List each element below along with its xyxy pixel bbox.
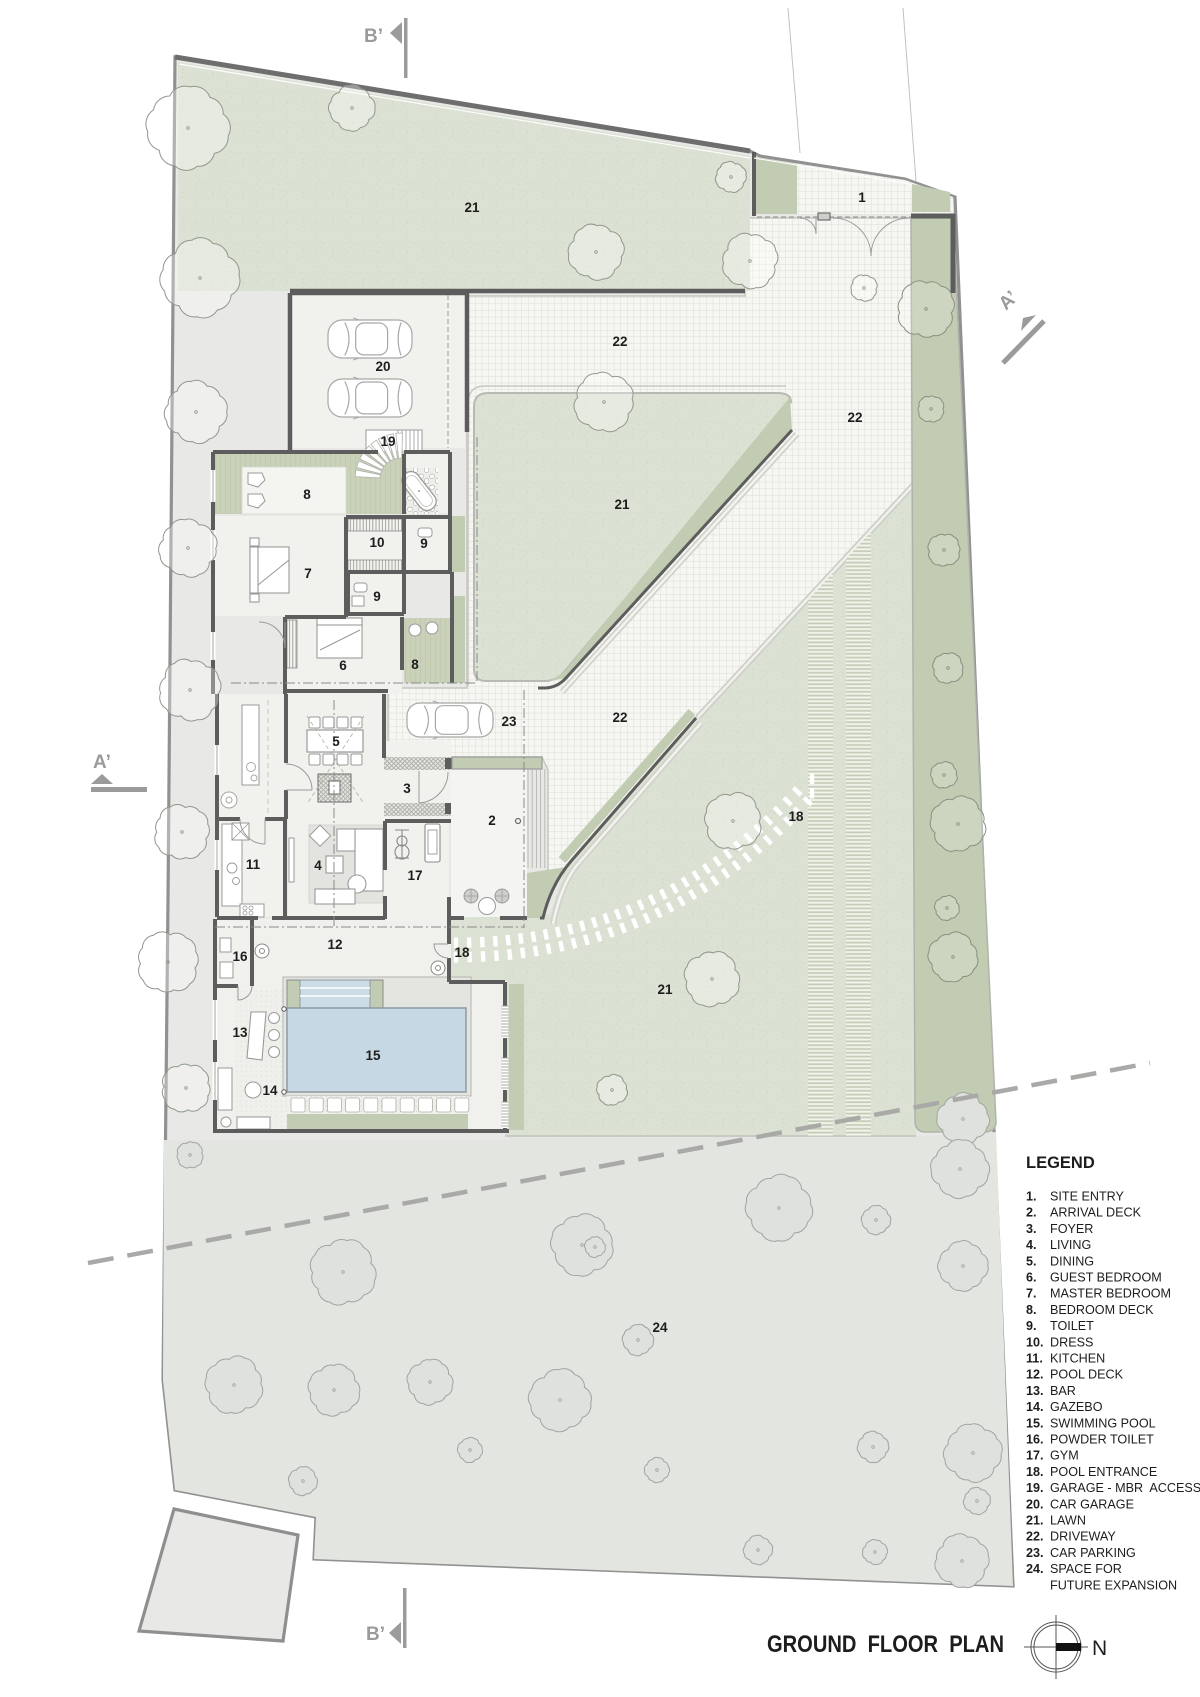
svg-text:8.: 8. — [1026, 1303, 1037, 1317]
svg-text:POOL ENTRANCE: POOL ENTRANCE — [1050, 1465, 1157, 1479]
svg-text:LIVING: LIVING — [1050, 1238, 1091, 1252]
svg-text:4.: 4. — [1026, 1238, 1037, 1252]
svg-text:23: 23 — [501, 714, 517, 729]
svg-text:21: 21 — [464, 200, 480, 215]
svg-text:16.: 16. — [1026, 1433, 1044, 1447]
svg-text:15: 15 — [365, 1048, 381, 1063]
svg-text:GROUND FLOOR PLAN: GROUND FLOOR PLAN — [767, 1631, 1004, 1658]
svg-text:3: 3 — [403, 781, 411, 796]
svg-text:B’: B’ — [366, 1624, 385, 1645]
svg-text:FUTURE EXPANSION: FUTURE EXPANSION — [1050, 1578, 1177, 1592]
svg-text:9: 9 — [373, 589, 381, 604]
svg-text:21: 21 — [614, 497, 630, 512]
svg-text:DRESS: DRESS — [1050, 1335, 1093, 1349]
svg-text:KITCHEN: KITCHEN — [1050, 1352, 1105, 1366]
svg-text:22.: 22. — [1026, 1530, 1044, 1544]
svg-text:9: 9 — [420, 536, 428, 551]
svg-text:SITE ENTRY: SITE ENTRY — [1050, 1190, 1125, 1204]
svg-text:1: 1 — [858, 190, 866, 205]
svg-text:B’: B’ — [364, 26, 383, 47]
svg-text:3.: 3. — [1026, 1222, 1037, 1236]
svg-text:DINING: DINING — [1050, 1254, 1094, 1268]
svg-text:16: 16 — [232, 949, 248, 964]
svg-text:1.: 1. — [1026, 1190, 1037, 1204]
svg-text:6.: 6. — [1026, 1271, 1037, 1285]
svg-text:22: 22 — [847, 410, 862, 425]
svg-text:18: 18 — [788, 809, 804, 824]
svg-text:22: 22 — [612, 710, 627, 725]
svg-text:CAR PARKING: CAR PARKING — [1050, 1546, 1136, 1560]
svg-text:19.: 19. — [1026, 1481, 1044, 1495]
svg-text:21: 21 — [657, 982, 673, 997]
svg-text:13: 13 — [232, 1025, 248, 1040]
svg-text:15.: 15. — [1026, 1416, 1044, 1430]
svg-text:11: 11 — [246, 857, 261, 872]
svg-text:SWIMMING POOL: SWIMMING POOL — [1050, 1416, 1156, 1430]
svg-text:10: 10 — [369, 535, 384, 550]
svg-text:GAZEBO: GAZEBO — [1050, 1400, 1103, 1414]
svg-text:12.: 12. — [1026, 1368, 1044, 1382]
svg-text:TOILET: TOILET — [1050, 1319, 1094, 1333]
svg-text:8: 8 — [303, 487, 311, 502]
svg-text:GYM: GYM — [1050, 1449, 1079, 1463]
svg-text:7.: 7. — [1026, 1287, 1037, 1301]
svg-text:7: 7 — [304, 566, 312, 581]
svg-text:SPACE FOR: SPACE FOR — [1050, 1562, 1122, 1576]
svg-text:17: 17 — [407, 868, 422, 883]
svg-text:14.: 14. — [1026, 1400, 1044, 1414]
svg-text:23.: 23. — [1026, 1546, 1044, 1560]
svg-text:18: 18 — [454, 945, 470, 960]
svg-text:2.: 2. — [1026, 1206, 1037, 1220]
svg-text:24: 24 — [652, 1320, 668, 1335]
svg-text:A’: A’ — [93, 752, 111, 773]
svg-text:GUEST BEDROOM: GUEST BEDROOM — [1050, 1271, 1162, 1285]
svg-text:FOYER: FOYER — [1050, 1222, 1093, 1236]
svg-text:4: 4 — [314, 858, 322, 873]
svg-text:5.: 5. — [1026, 1254, 1037, 1268]
svg-text:CAR GARAGE: CAR GARAGE — [1050, 1497, 1134, 1511]
svg-text:22: 22 — [612, 334, 627, 349]
svg-text:12: 12 — [327, 937, 342, 952]
svg-text:N: N — [1092, 1637, 1107, 1660]
svg-text:19: 19 — [380, 434, 395, 449]
svg-text:LEGEND: LEGEND — [1026, 1154, 1095, 1172]
svg-text:ARRIVAL DECK: ARRIVAL DECK — [1050, 1206, 1142, 1220]
svg-text:5: 5 — [332, 734, 340, 749]
svg-text:LAWN: LAWN — [1050, 1514, 1086, 1528]
svg-text:20.: 20. — [1026, 1497, 1044, 1511]
svg-text:18.: 18. — [1026, 1465, 1044, 1479]
svg-text:8: 8 — [411, 657, 419, 672]
svg-text:21.: 21. — [1026, 1514, 1044, 1528]
svg-text:BAR: BAR — [1050, 1384, 1076, 1398]
svg-text:17.: 17. — [1026, 1449, 1044, 1463]
svg-text:10.: 10. — [1026, 1335, 1044, 1349]
svg-text:14: 14 — [262, 1083, 278, 1098]
svg-text:DRIVEWAY: DRIVEWAY — [1050, 1530, 1116, 1544]
svg-text:9.: 9. — [1026, 1319, 1037, 1333]
svg-text:MASTER BEDROOM: MASTER BEDROOM — [1050, 1287, 1171, 1301]
svg-text:11.: 11. — [1026, 1352, 1043, 1366]
svg-text:GARAGE - MBR ACCESS: GARAGE - MBR ACCESS — [1050, 1481, 1200, 1495]
svg-text:BEDROOM DECK: BEDROOM DECK — [1050, 1303, 1154, 1317]
svg-text:2: 2 — [488, 813, 496, 828]
svg-text:6: 6 — [339, 658, 347, 673]
svg-text:POWDER TOILET: POWDER TOILET — [1050, 1433, 1154, 1447]
svg-text:20: 20 — [375, 359, 390, 374]
svg-text:POOL DECK: POOL DECK — [1050, 1368, 1124, 1382]
svg-text:24.: 24. — [1026, 1562, 1044, 1576]
svg-text:13.: 13. — [1026, 1384, 1044, 1398]
